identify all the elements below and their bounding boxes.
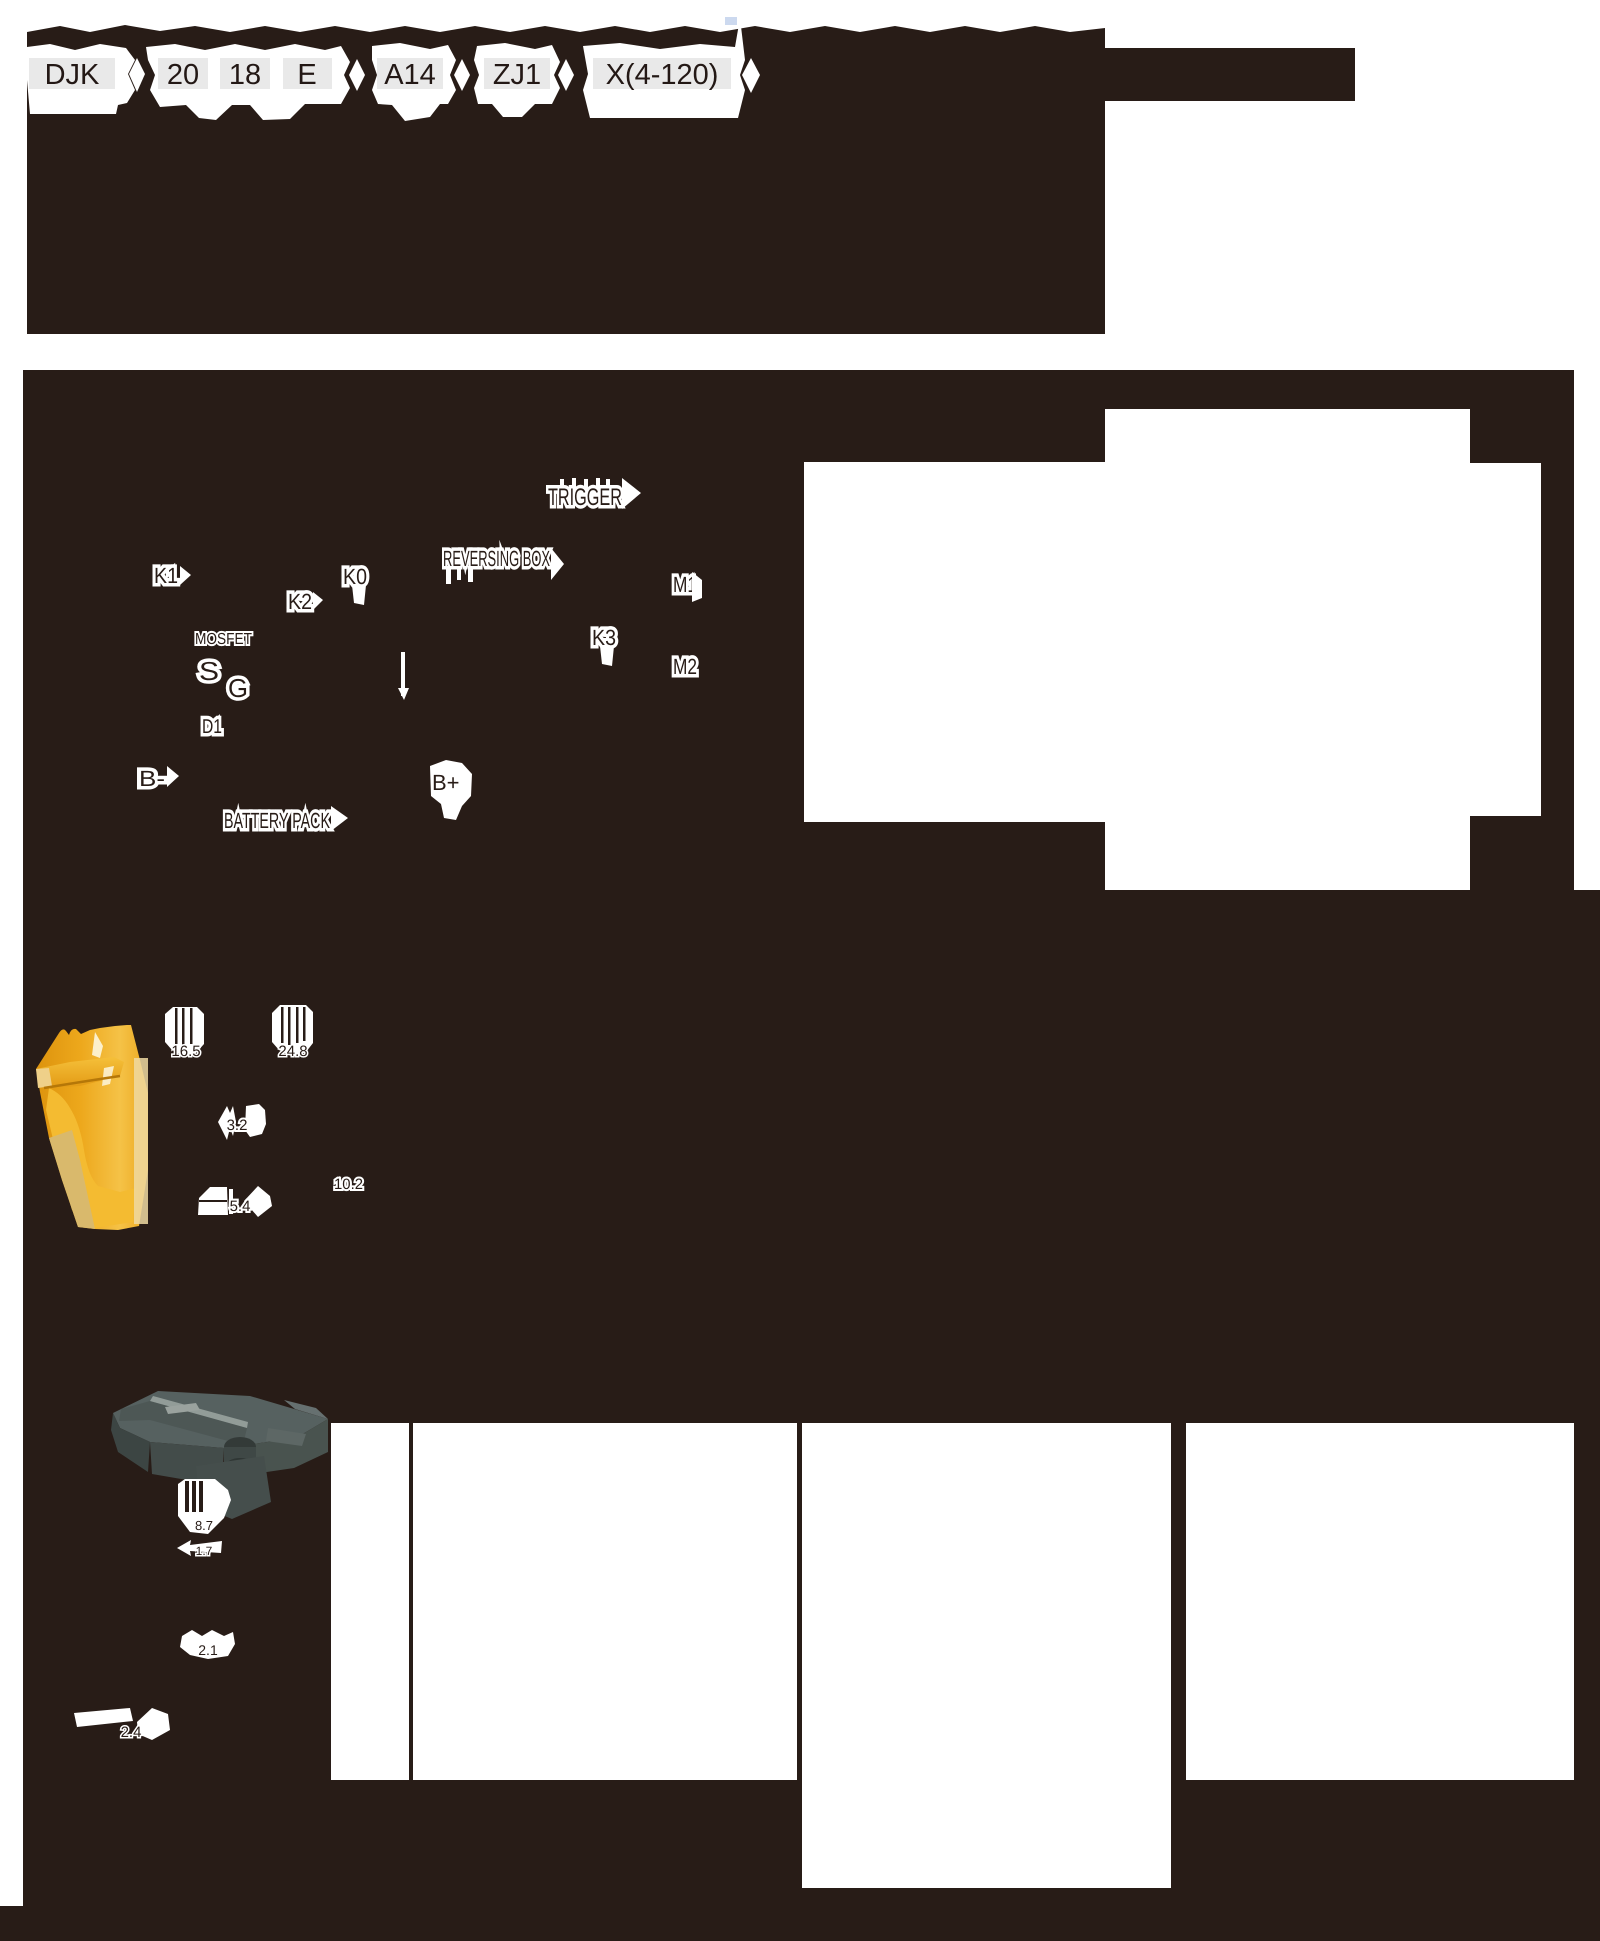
svg-text:D1: D1 xyxy=(202,716,222,738)
svg-text:24.8: 24.8 xyxy=(278,1043,307,1060)
svg-text:18: 18 xyxy=(229,59,261,91)
svg-text:S: S xyxy=(199,656,219,686)
svg-text:A14: A14 xyxy=(384,59,436,91)
svg-text:E: E xyxy=(297,59,316,91)
svg-text:8.7: 8.7 xyxy=(195,1518,213,1533)
svg-text:MOSFET: MOSFET xyxy=(195,631,252,648)
svg-text:B-: B- xyxy=(139,766,165,791)
svg-text:2.1: 2.1 xyxy=(198,1642,218,1658)
svg-text:TRIGGER: TRIGGER xyxy=(548,484,622,511)
svg-text:16.5: 16.5 xyxy=(171,1043,200,1060)
svg-text:1.7: 1.7 xyxy=(196,1544,213,1558)
svg-text:G: G xyxy=(228,673,248,703)
svg-text:BATTERY PACK: BATTERY PACK xyxy=(224,808,330,833)
svg-text:3.2: 3.2 xyxy=(227,1117,248,1134)
svg-text:10.2: 10.2 xyxy=(334,1176,363,1193)
svg-text:K2: K2 xyxy=(288,589,312,614)
svg-text:2.4: 2.4 xyxy=(121,1724,142,1741)
svg-text:K1: K1 xyxy=(154,563,178,588)
svg-text:X(4-120): X(4-120) xyxy=(606,59,719,91)
svg-text:M2: M2 xyxy=(673,654,697,679)
svg-text:ZJ1: ZJ1 xyxy=(493,59,541,91)
svg-text:5.4: 5.4 xyxy=(230,1198,251,1215)
svg-text:DJK: DJK xyxy=(45,59,100,91)
svg-text:B+: B+ xyxy=(432,770,460,795)
svg-text:20: 20 xyxy=(167,59,199,91)
